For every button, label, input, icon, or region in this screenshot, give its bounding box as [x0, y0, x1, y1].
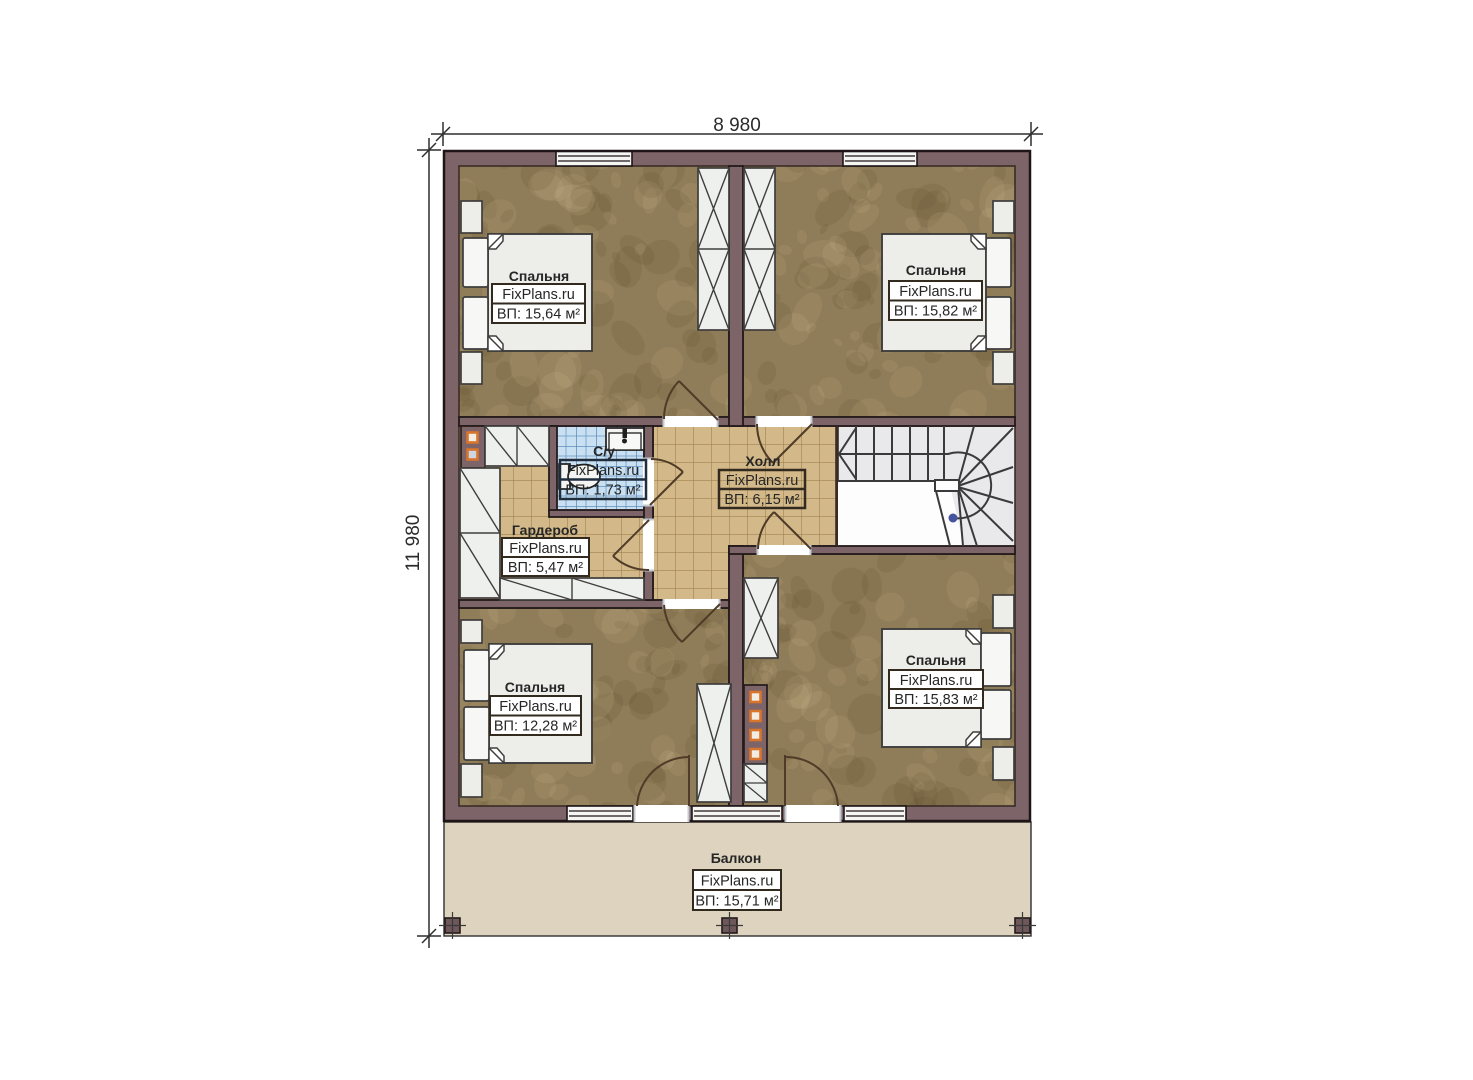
- svg-text:Спальня: Спальня: [509, 268, 569, 284]
- svg-text:Спальня: Спальня: [906, 262, 966, 278]
- svg-text:FixPlans.ru: FixPlans.ru: [509, 541, 582, 557]
- svg-text:11 980: 11 980: [403, 515, 424, 572]
- svg-text:Гардероб: Гардероб: [512, 522, 579, 538]
- svg-text:ВП: 6,15 м²: ВП: 6,15 м²: [724, 492, 799, 508]
- svg-text:FixPlans.ru: FixPlans.ru: [899, 284, 972, 300]
- svg-text:Холл: Холл: [745, 453, 780, 469]
- svg-text:ВП: 1,73 м²: ВП: 1,73 м²: [565, 483, 640, 499]
- svg-text:Балкон: Балкон: [711, 850, 762, 866]
- svg-text:Спальня: Спальня: [505, 679, 565, 695]
- svg-text:8 980: 8 980: [713, 115, 761, 136]
- svg-text:ВП: 5,47 м²: ВП: 5,47 м²: [508, 560, 583, 576]
- svg-text:ВП: 15,64 м²: ВП: 15,64 м²: [497, 307, 580, 323]
- svg-text:FixPlans.ru: FixPlans.ru: [701, 874, 774, 890]
- svg-text:ВП: 15,82 м²: ВП: 15,82 м²: [894, 304, 977, 320]
- svg-text:FixPlans.ru: FixPlans.ru: [502, 287, 575, 303]
- svg-text:FixPlans.ru: FixPlans.ru: [726, 473, 799, 489]
- svg-text:FixPlans.ru: FixPlans.ru: [567, 463, 640, 479]
- svg-text:FixPlans.ru: FixPlans.ru: [499, 699, 572, 715]
- svg-text:ВП: 15,83 м²: ВП: 15,83 м²: [894, 692, 977, 708]
- svg-text:ВП: 12,28 м²: ВП: 12,28 м²: [494, 719, 577, 735]
- svg-text:С/у: С/у: [593, 443, 615, 459]
- svg-text:FixPlans.ru: FixPlans.ru: [900, 673, 973, 689]
- svg-text:Спальня: Спальня: [906, 652, 966, 668]
- svg-text:ВП: 15,71 м²: ВП: 15,71 м²: [695, 894, 778, 910]
